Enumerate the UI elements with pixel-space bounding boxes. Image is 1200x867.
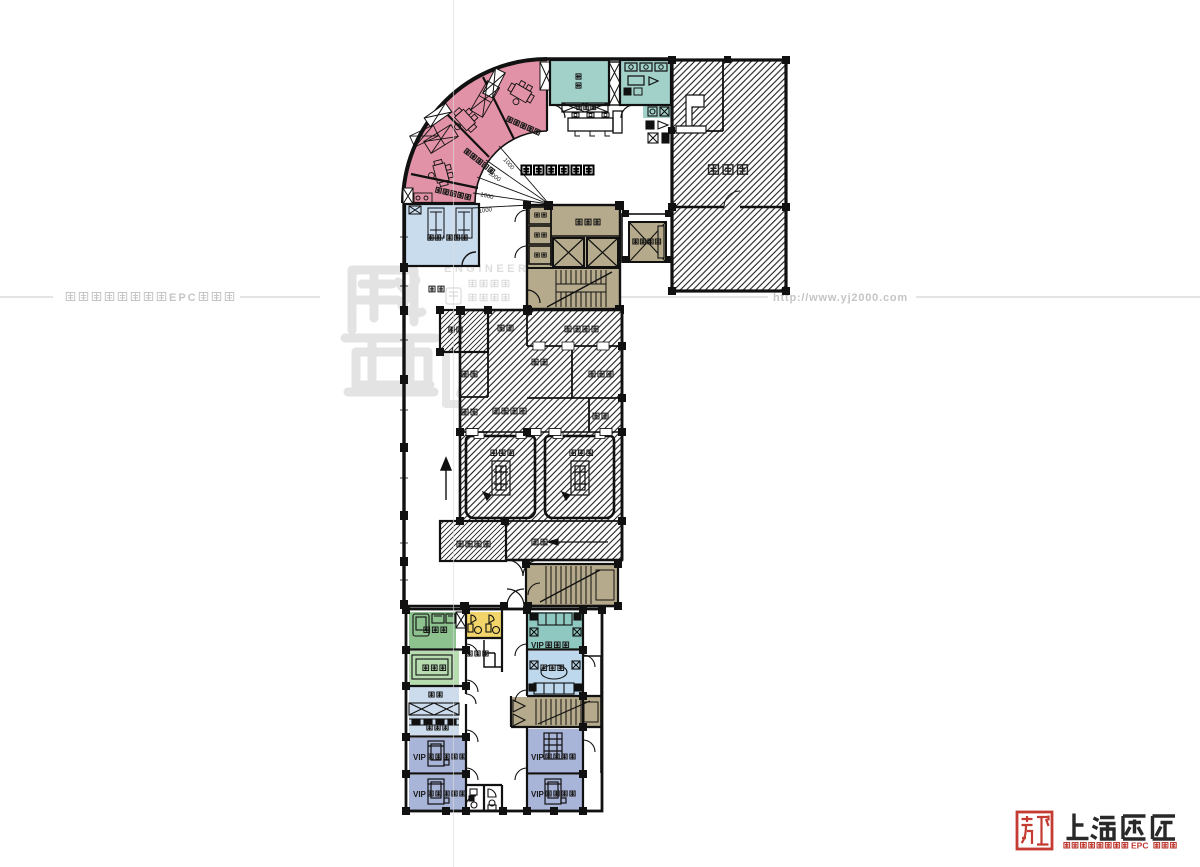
svg-text:VIP: VIP (531, 641, 545, 650)
svg-text:1000: 1000 (480, 192, 495, 201)
svg-text:EPC: EPC (1131, 841, 1148, 851)
svg-text:EPC: EPC (169, 292, 198, 304)
svg-text:/: / (442, 236, 444, 243)
svg-text:VIP: VIP (413, 753, 427, 762)
svg-text:1000: 1000 (501, 157, 515, 172)
svg-text:http://www.yj2000.com: http://www.yj2000.com (773, 292, 908, 304)
svg-text:1000: 1000 (478, 207, 493, 215)
svg-text:VIP: VIP (531, 753, 545, 762)
svg-text:VIP: VIP (413, 790, 427, 799)
svg-text:VIP: VIP (531, 790, 545, 799)
